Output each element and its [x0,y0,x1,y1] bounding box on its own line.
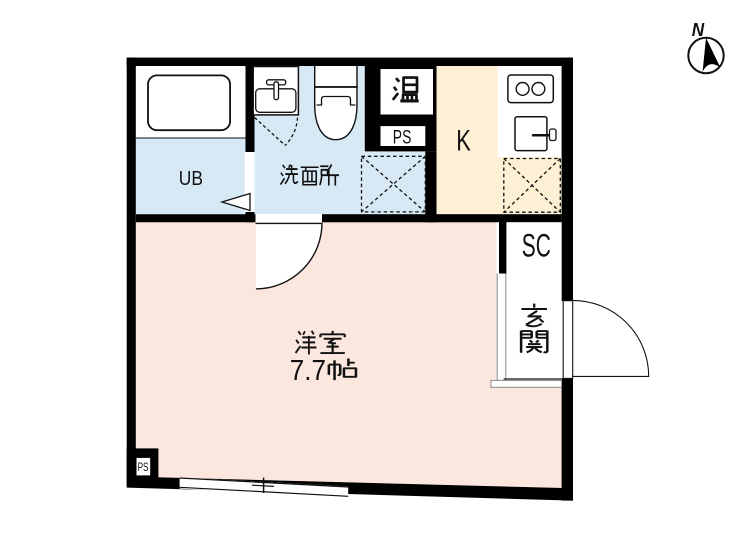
svg-text:N: N [692,20,705,40]
svg-text:7.7: 7.7 [290,355,326,387]
svg-text:PS: PS [393,127,412,148]
svg-text:UB: UB [179,167,203,190]
svg-text:SC: SC [522,227,551,263]
svg-text:PS: PS [138,460,149,474]
svg-text:K: K [456,125,471,158]
